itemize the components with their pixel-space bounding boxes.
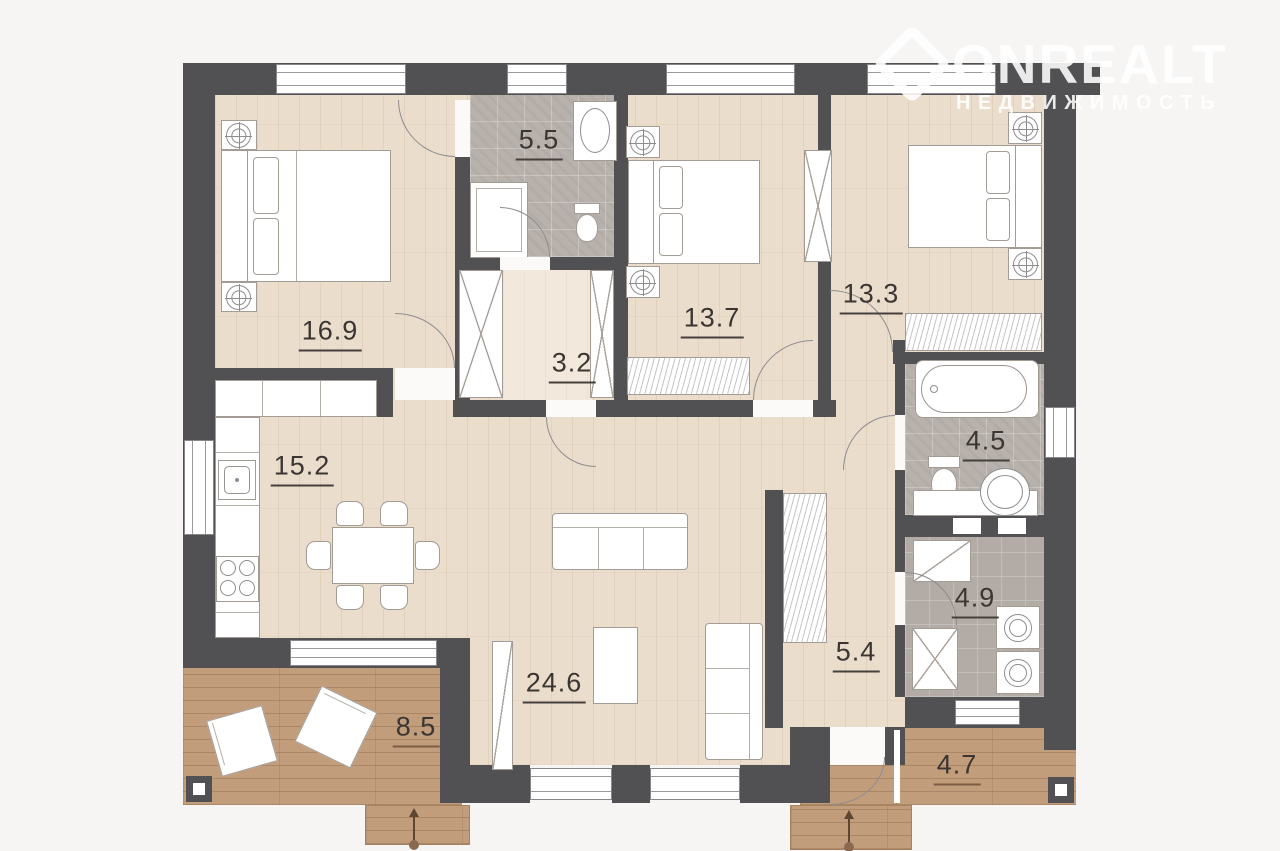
entrance-arrow-dot <box>844 842 854 851</box>
sofa <box>552 513 688 570</box>
wall-living-bottom-3 <box>740 765 793 803</box>
toilet-tank <box>928 456 960 468</box>
washer-drum-inner <box>1009 619 1027 637</box>
bed-headboard <box>221 150 248 282</box>
brand-tagline: НЕДВИЖИМОСТЬ <box>956 92 1222 115</box>
column <box>186 776 212 802</box>
door-opening <box>500 257 550 270</box>
wardrobe <box>912 628 958 690</box>
lamp-icon <box>226 285 251 310</box>
bench-rug <box>627 357 750 395</box>
door-opening <box>546 400 596 417</box>
divider-niche <box>953 518 981 534</box>
window <box>650 768 740 800</box>
burner <box>239 560 255 576</box>
window <box>290 640 437 666</box>
door-opening <box>895 572 905 625</box>
brand-name: ONREALT <box>952 32 1228 96</box>
chair <box>415 541 440 570</box>
lamp-icon <box>1013 116 1038 141</box>
entrance-arrow <box>848 818 850 844</box>
chair <box>380 585 408 610</box>
burner <box>239 580 255 596</box>
room-label-bedroom-3: 13.3 <box>840 279 903 310</box>
counter-seam <box>216 612 259 613</box>
porch-divider <box>894 730 900 803</box>
wardrobe <box>459 270 503 398</box>
sofa-cushion-line <box>598 528 599 569</box>
room-label-bedroom-2: 13.7 <box>681 303 744 334</box>
pillow <box>253 157 279 214</box>
door-opening <box>753 400 813 417</box>
blanket-edge <box>296 151 297 281</box>
entrance-arrow <box>413 816 415 842</box>
burner <box>220 580 236 596</box>
sink-drain <box>235 478 239 482</box>
wall-porch-left <box>790 727 830 803</box>
window <box>276 64 406 94</box>
door-opening <box>395 368 455 400</box>
room-label-living-room: 24.6 <box>523 668 586 699</box>
floor-plan: 16.9 5.5 13.7 13.3 3.2 15.2 4.5 4.9 5.4 … <box>0 0 1280 851</box>
lamp-icon <box>630 270 655 295</box>
window <box>666 64 795 94</box>
counter-seam <box>216 452 259 453</box>
room-label-kitchen: 15.2 <box>271 451 334 482</box>
washer-drum-inner <box>1009 664 1027 682</box>
rug <box>905 313 1042 351</box>
door-opening <box>895 415 905 470</box>
wall-living-bottom-1 <box>462 765 530 803</box>
burner <box>220 560 236 576</box>
wall-hallway-right-2 <box>895 470 905 572</box>
sink-icon <box>580 108 610 153</box>
window <box>530 768 612 800</box>
sofa-cushion-line <box>643 528 644 569</box>
sofa-back-line <box>749 624 750 759</box>
chair <box>380 501 408 526</box>
coffee-table <box>593 627 638 704</box>
room-label-laundry: 4.9 <box>952 583 999 614</box>
toilet-icon <box>576 214 598 242</box>
kitchen-counter-top <box>215 380 377 417</box>
window <box>507 64 567 94</box>
tv-cabinet <box>492 641 513 770</box>
wall-hallway-right-1 <box>895 364 905 415</box>
wall-left <box>183 63 215 640</box>
pillow <box>659 166 683 209</box>
wall-living-bottom-2 <box>612 765 650 803</box>
divider-niche <box>998 518 1026 534</box>
pillow <box>986 198 1010 241</box>
counter-seam <box>262 381 263 416</box>
wall-kitchen-pillar <box>377 368 393 417</box>
pillow <box>986 151 1010 194</box>
bed-headboard <box>628 160 654 264</box>
room-label-porch: 4.7 <box>934 750 981 781</box>
sofa-back-line <box>553 527 687 528</box>
toilet-tank <box>574 203 600 214</box>
entrance-arrow-dot <box>409 840 419 850</box>
lamp-icon <box>226 123 251 148</box>
wall-bedroom2-pillar <box>813 400 836 417</box>
sofa <box>705 623 763 760</box>
window <box>184 440 214 535</box>
counter-seam <box>320 381 321 416</box>
bathtub-drain <box>930 385 938 393</box>
room-label-bathroom-2: 4.5 <box>963 426 1010 457</box>
room-label-bathroom-1: 5.5 <box>516 125 563 156</box>
room-label-bedroom-1: 16.9 <box>299 316 362 347</box>
pillow <box>253 218 279 275</box>
room-label-hallway: 5.4 <box>833 637 880 668</box>
wall-hallway-left <box>765 490 783 728</box>
door-opening <box>455 100 470 157</box>
dining-table <box>332 527 414 584</box>
chair <box>306 541 331 570</box>
kitchen-counter-left <box>215 417 260 638</box>
room-label-terrace: 8.5 <box>393 712 440 743</box>
chair <box>336 585 364 610</box>
wall-bedroom2-bottom <box>596 400 753 417</box>
pillow <box>659 213 683 256</box>
wall-bedroom3-pillar <box>893 340 905 364</box>
window <box>955 700 1020 725</box>
lamp-icon <box>1013 252 1038 277</box>
room-label-closet: 3.2 <box>549 348 596 379</box>
column <box>1048 777 1074 803</box>
wall-closet-bottom <box>453 400 546 417</box>
vessel-sink-inner <box>987 475 1023 509</box>
bed-headboard <box>1015 145 1042 248</box>
window <box>1045 407 1075 458</box>
sofa-cushion-line <box>706 713 749 714</box>
lamp-icon <box>630 130 655 155</box>
counter-seam <box>216 505 259 506</box>
wardrobe <box>804 150 832 262</box>
wall-hallway-right-3 <box>895 625 905 697</box>
sofa-cushion-line <box>706 668 749 669</box>
wardrobe <box>783 493 827 643</box>
chair <box>336 501 364 526</box>
